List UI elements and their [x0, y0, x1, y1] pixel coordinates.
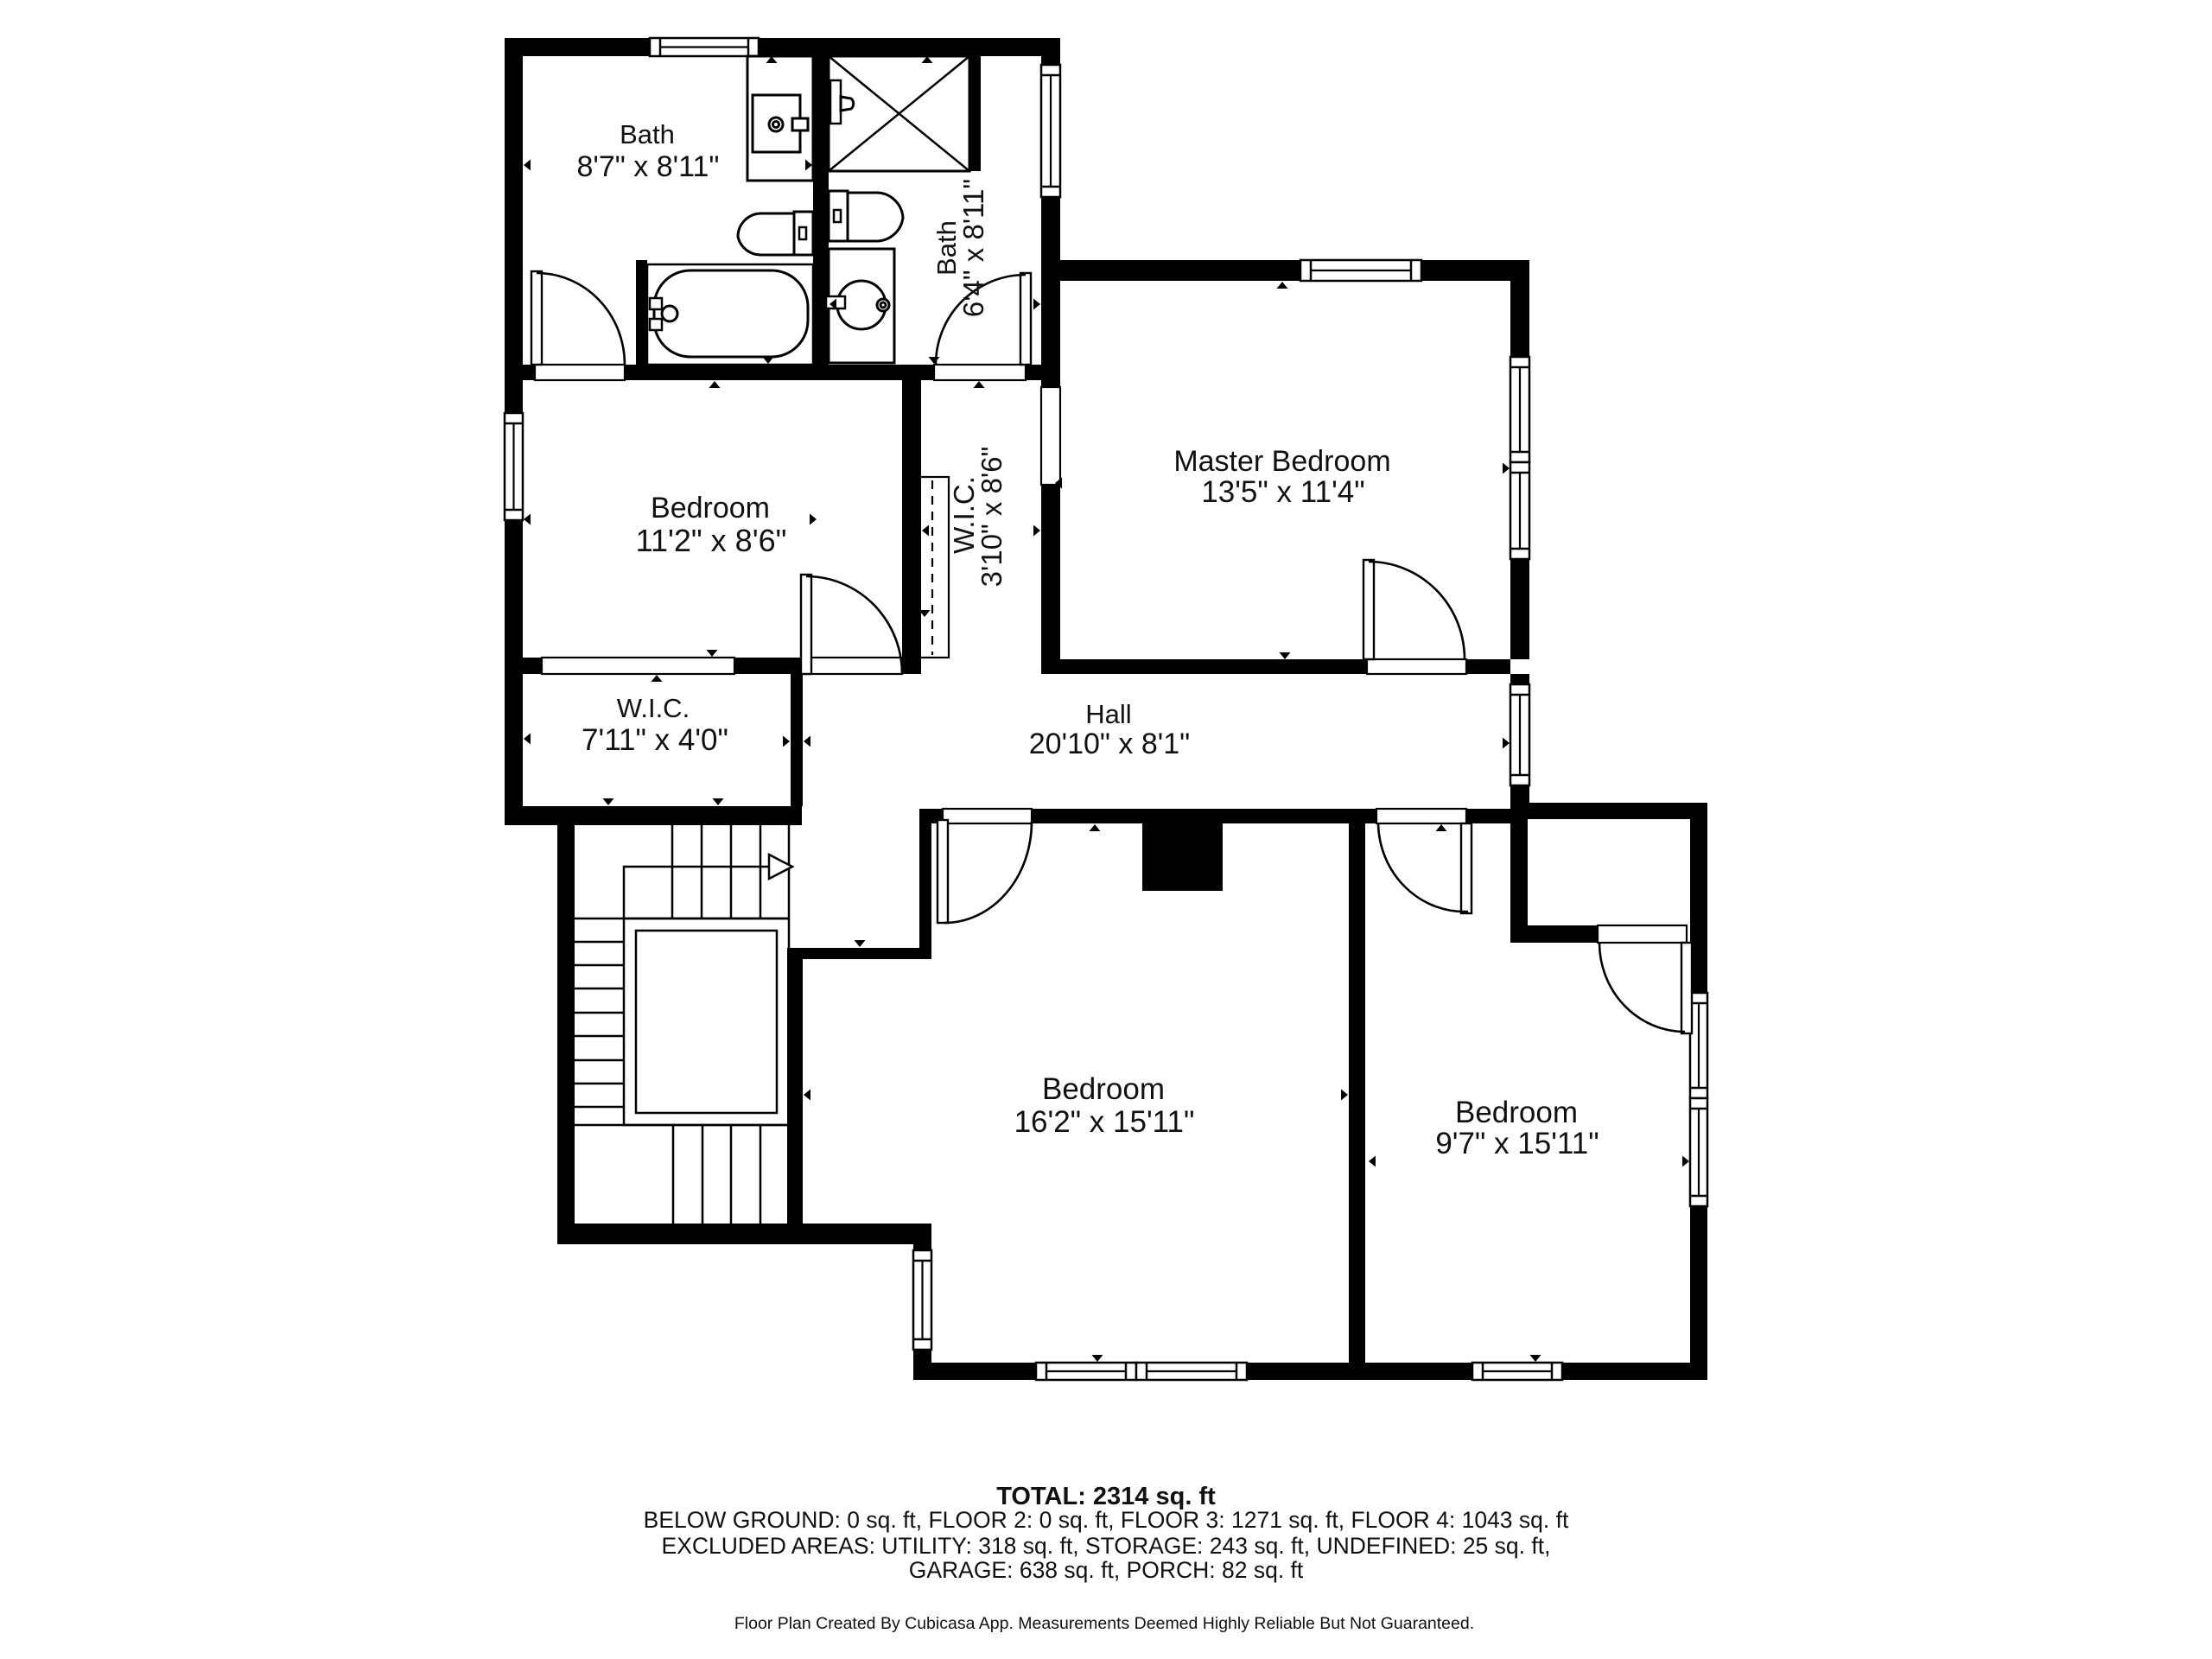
svg-text:6'4" x 8'11": 6'4" x 8'11": [957, 179, 989, 317]
svg-text:7'11" x 4'0": 7'11" x 4'0": [582, 723, 728, 757]
svg-text:EXCLUDED AREAS: UTILITY: 318 s: EXCLUDED AREAS: UTILITY: 318 sq. ft, STO…: [662, 1533, 1551, 1559]
svg-text:8'7" x 8'11": 8'7" x 8'11": [576, 150, 719, 183]
svg-text:3'10" x 8'6": 3'10" x 8'6": [976, 447, 1007, 588]
svg-text:16'2" x 15'11": 16'2" x 15'11": [1014, 1105, 1195, 1139]
svg-text:GARAGE: 638 sq. ft, PORCH: 82: GARAGE: 638 sq. ft, PORCH: 82 sq. ft: [909, 1557, 1304, 1583]
svg-text:Hall: Hall: [1085, 699, 1131, 729]
svg-text:Bedroom: Bedroom: [651, 492, 770, 524]
svg-text:Master Bedroom: Master Bedroom: [1173, 445, 1390, 478]
svg-text:13'5" x 11'4": 13'5" x 11'4": [1201, 475, 1364, 509]
svg-text:Bedroom: Bedroom: [1042, 1072, 1165, 1106]
svg-text:Bedroom: Bedroom: [1455, 1096, 1578, 1129]
svg-text:BELOW GROUND: 0 sq. ft, FLOOR: BELOW GROUND: 0 sq. ft, FLOOR 2: 0 sq. f…: [644, 1507, 1569, 1533]
svg-text:20'10" x 8'1": 20'10" x 8'1": [1029, 728, 1190, 760]
svg-text:9'7" x 15'11": 9'7" x 15'11": [1435, 1127, 1599, 1160]
svg-text:Bath: Bath: [620, 119, 675, 149]
svg-text:11'2" x 8'6": 11'2" x 8'6": [636, 523, 787, 558]
svg-text:Floor Plan Created By Cubicasa: Floor Plan Created By Cubicasa App. Meas…: [734, 1614, 1474, 1633]
svg-text:W.I.C.: W.I.C.: [617, 693, 690, 723]
